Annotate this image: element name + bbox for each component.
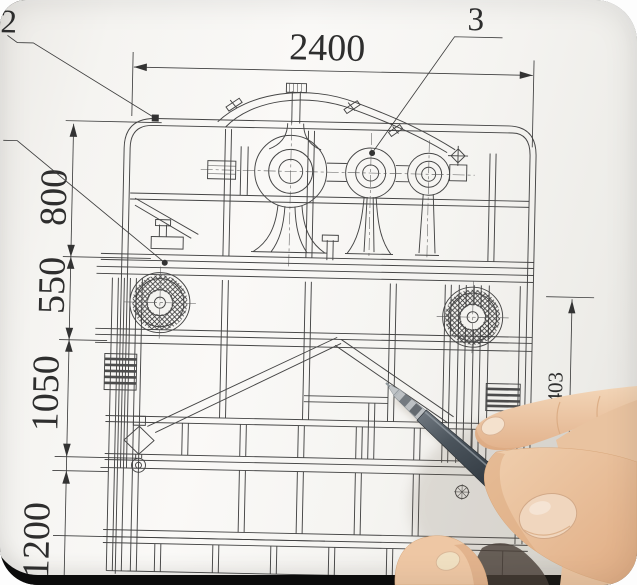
hand-and-pen	[0, 0, 637, 585]
photo: 2400 800 550 1050	[0, 0, 637, 585]
screenshot: 2400 800 550 1050	[0, 0, 637, 585]
